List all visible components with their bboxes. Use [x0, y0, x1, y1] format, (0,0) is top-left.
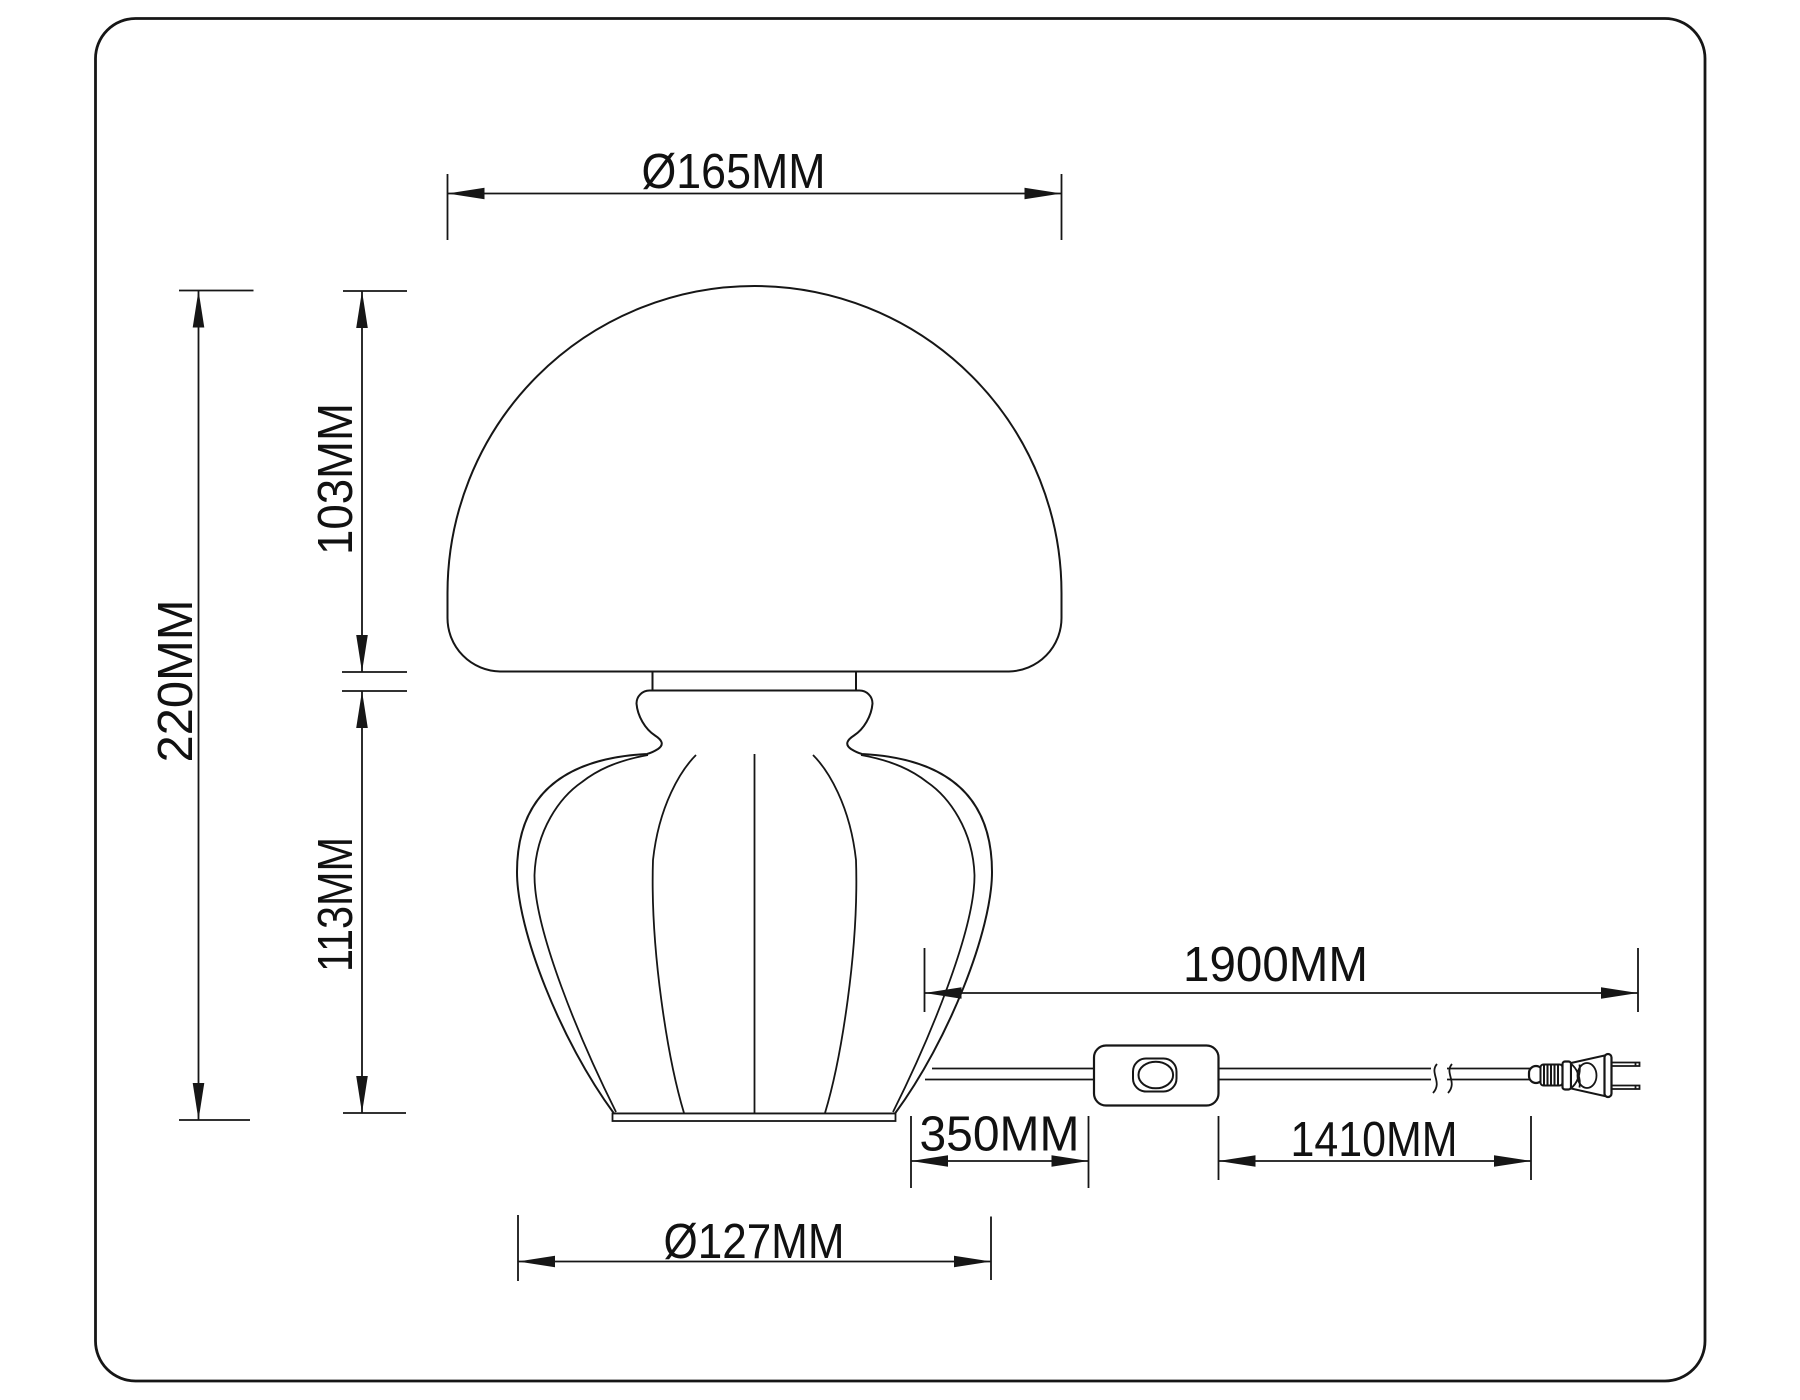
svg-text:Ø127MM: Ø127MM [664, 1214, 845, 1269]
svg-text:1410MM: 1410MM [1291, 1112, 1458, 1167]
svg-text:103MM: 103MM [308, 403, 363, 555]
svg-text:1900MM: 1900MM [1183, 937, 1368, 992]
svg-text:Ø165MM: Ø165MM [642, 144, 826, 199]
svg-text:113MM: 113MM [308, 837, 363, 972]
svg-text:350MM: 350MM [920, 1107, 1080, 1162]
svg-text:220MM: 220MM [148, 600, 203, 763]
